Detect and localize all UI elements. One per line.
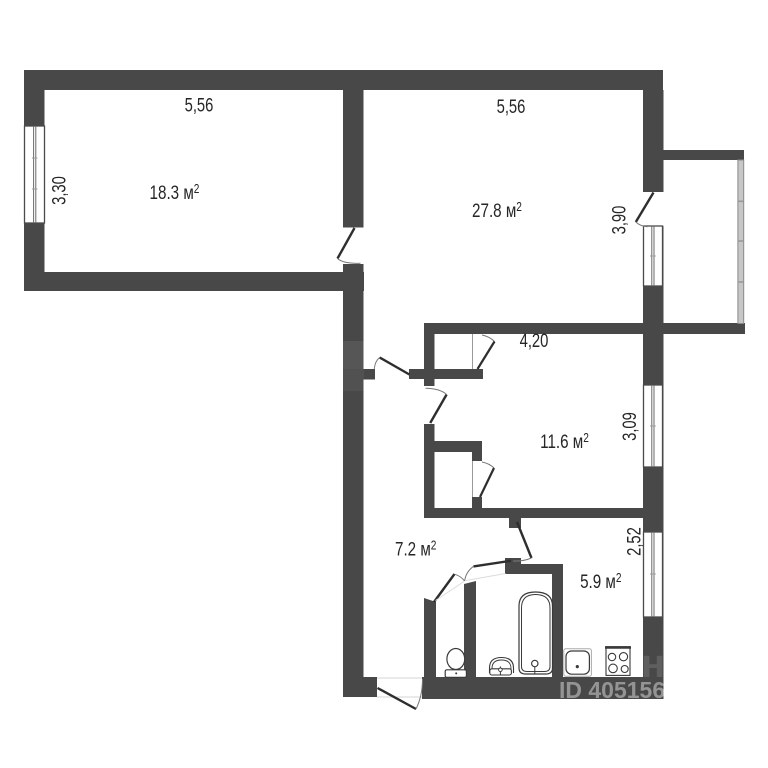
svg-text:11.6 м2: 11.6 м2 [540, 430, 589, 452]
svg-text:3,30: 3,30 [49, 176, 70, 205]
svg-text:4,20: 4,20 [520, 330, 549, 351]
svg-text:нк: нк [641, 642, 686, 686]
svg-text:3,90: 3,90 [609, 206, 630, 235]
svg-text:7.2 м2: 7.2 м2 [395, 538, 436, 560]
svg-text:5.9 м2: 5.9 м2 [580, 570, 621, 592]
svg-text:3,09: 3,09 [619, 412, 640, 441]
svg-text:5,56: 5,56 [185, 95, 214, 116]
svg-text:27.8 м2: 27.8 м2 [472, 199, 522, 221]
svg-text:18.3 м2: 18.3 м2 [150, 181, 200, 203]
svg-text:5,56: 5,56 [497, 96, 526, 117]
svg-text:2,52: 2,52 [624, 527, 645, 556]
